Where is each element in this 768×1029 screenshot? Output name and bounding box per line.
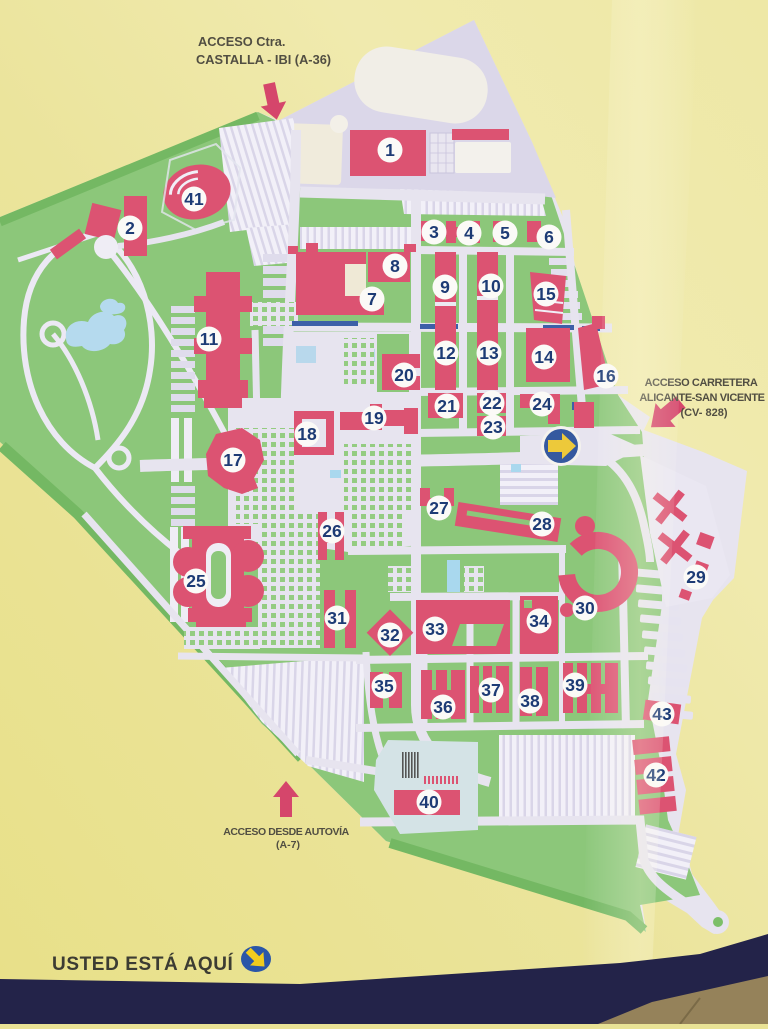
svg-text:USTED ESTÁ AQUÍ: USTED ESTÁ AQUÍ bbox=[52, 953, 234, 975]
svg-text:11: 11 bbox=[200, 329, 219, 349]
svg-text:28: 28 bbox=[532, 514, 552, 534]
svg-text:24: 24 bbox=[532, 394, 552, 414]
svg-text:4: 4 bbox=[464, 223, 474, 243]
svg-text:38: 38 bbox=[520, 691, 540, 711]
svg-text:21: 21 bbox=[437, 396, 457, 416]
svg-text:14: 14 bbox=[534, 347, 554, 367]
svg-text:18: 18 bbox=[297, 424, 317, 444]
svg-text:17: 17 bbox=[223, 450, 242, 470]
svg-text:31: 31 bbox=[327, 608, 347, 628]
svg-text:22: 22 bbox=[482, 393, 502, 413]
svg-text:ACCESO DESDE AUTOVÍA: ACCESO DESDE AUTOVÍA bbox=[223, 825, 349, 838]
svg-text:39: 39 bbox=[565, 675, 585, 695]
svg-text:3: 3 bbox=[429, 222, 439, 242]
svg-text:27: 27 bbox=[429, 498, 448, 518]
svg-text:25: 25 bbox=[186, 571, 206, 591]
svg-text:9: 9 bbox=[440, 277, 450, 297]
svg-text:1: 1 bbox=[385, 140, 395, 160]
svg-text:33: 33 bbox=[425, 619, 445, 639]
svg-text:23: 23 bbox=[483, 417, 503, 437]
svg-text:10: 10 bbox=[481, 276, 501, 296]
svg-text:8: 8 bbox=[390, 256, 400, 276]
svg-text:2: 2 bbox=[125, 218, 135, 238]
svg-text:19: 19 bbox=[364, 408, 384, 428]
svg-text:37: 37 bbox=[481, 680, 500, 700]
svg-text:20: 20 bbox=[394, 365, 414, 385]
svg-text:36: 36 bbox=[433, 697, 453, 717]
svg-text:(A-7): (A-7) bbox=[276, 839, 300, 851]
svg-text:7: 7 bbox=[367, 289, 377, 309]
svg-text:CASTALLA - IBI (A-36): CASTALLA - IBI (A-36) bbox=[196, 52, 331, 67]
svg-text:34: 34 bbox=[529, 611, 549, 631]
svg-text:(CV- 828): (CV- 828) bbox=[680, 407, 727, 419]
svg-text:29: 29 bbox=[686, 567, 706, 587]
svg-text:5: 5 bbox=[500, 223, 510, 243]
svg-text:40: 40 bbox=[419, 792, 439, 812]
svg-text:12: 12 bbox=[436, 343, 456, 363]
svg-text:6: 6 bbox=[544, 227, 554, 247]
svg-text:35: 35 bbox=[374, 676, 394, 696]
svg-text:13: 13 bbox=[479, 343, 499, 363]
svg-text:30: 30 bbox=[575, 598, 595, 618]
svg-text:41: 41 bbox=[184, 189, 204, 209]
svg-text:ACCESO Ctra.: ACCESO Ctra. bbox=[198, 34, 285, 49]
svg-text:32: 32 bbox=[380, 625, 400, 645]
svg-text:26: 26 bbox=[322, 521, 342, 541]
svg-text:15: 15 bbox=[536, 284, 556, 304]
